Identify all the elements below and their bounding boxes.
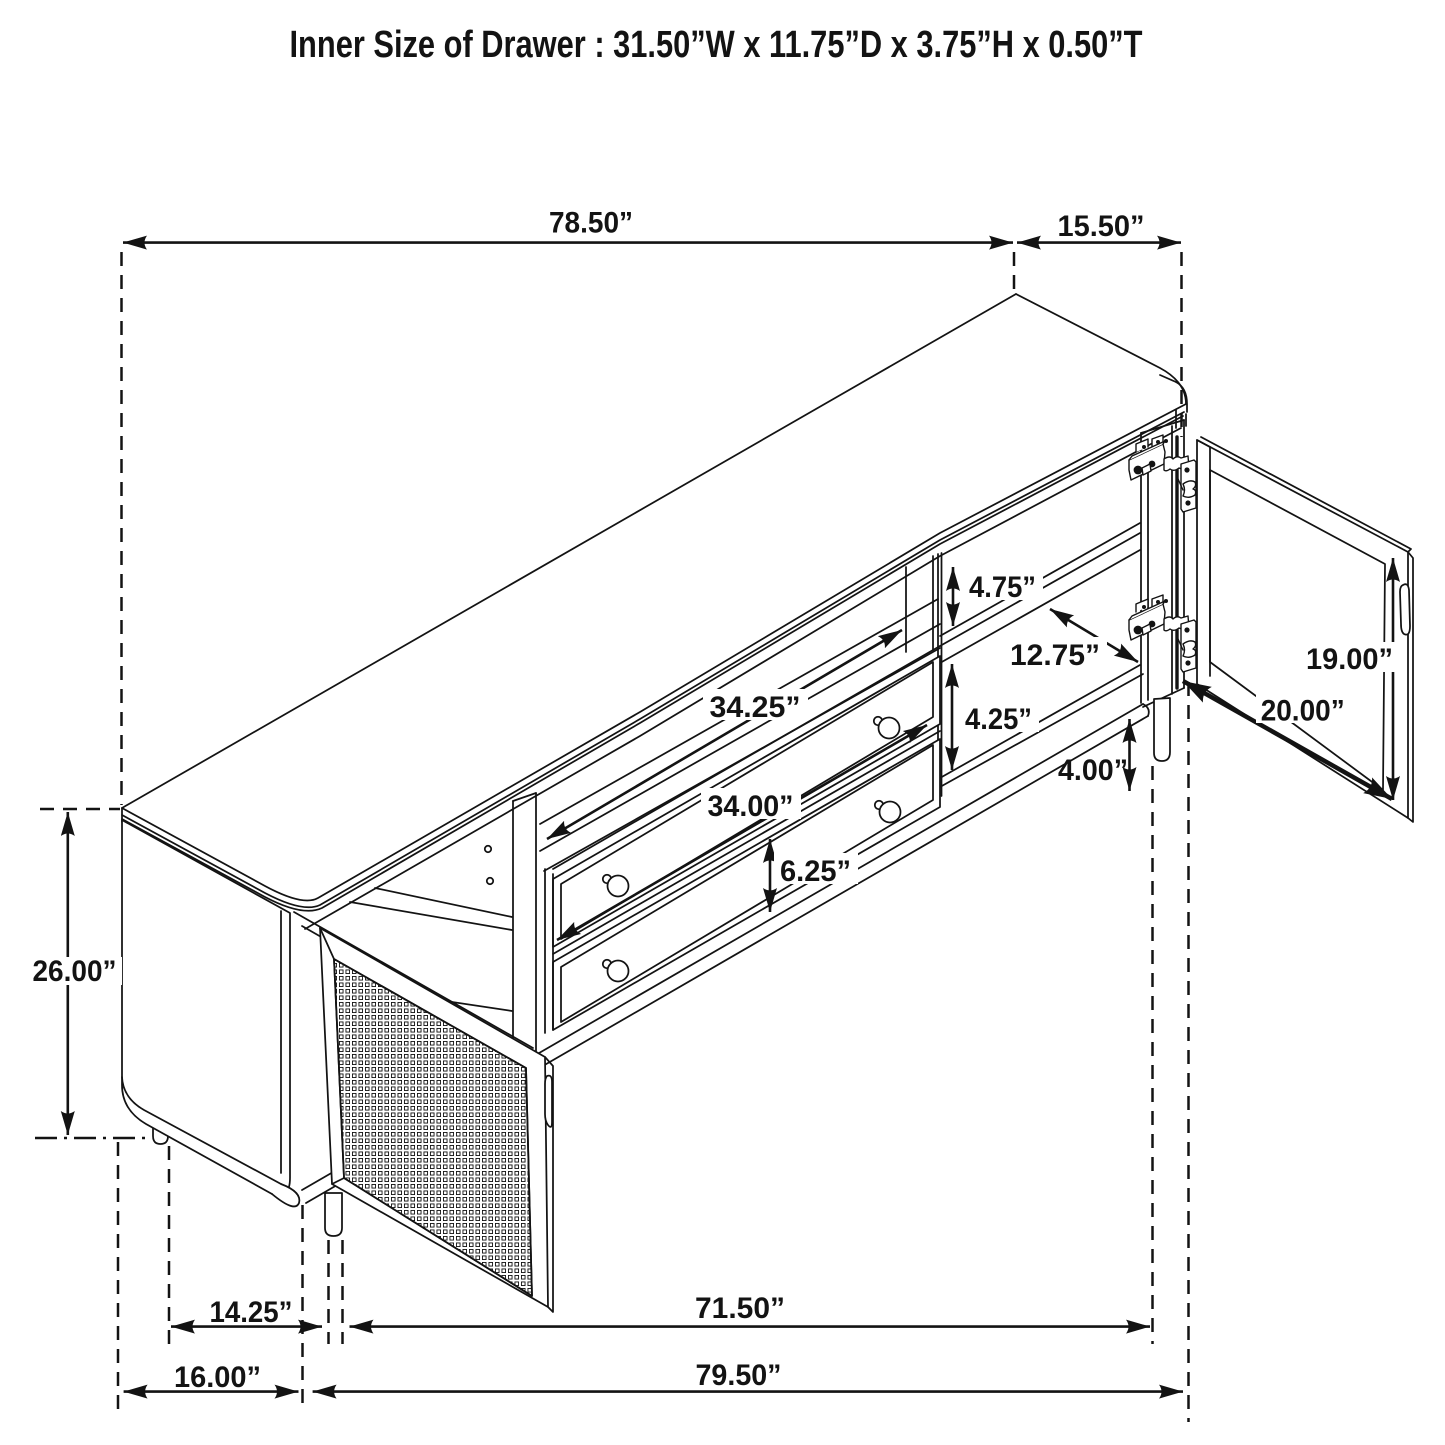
svg-text:4.75”: 4.75” (969, 571, 1036, 604)
svg-text:79.50”: 79.50” (696, 1359, 782, 1392)
svg-text:16.00”: 16.00” (174, 1361, 261, 1394)
svg-text:34.25”: 34.25” (710, 691, 801, 724)
svg-text:26.00”: 26.00” (33, 955, 117, 988)
svg-text:12.75”: 12.75” (1010, 639, 1100, 672)
svg-text:6.25”: 6.25” (780, 855, 851, 888)
svg-text:20.00”: 20.00” (1261, 695, 1345, 728)
svg-text:78.50”: 78.50” (549, 207, 633, 240)
svg-text:19.00”: 19.00” (1306, 643, 1393, 676)
svg-text:14.25”: 14.25” (210, 1296, 293, 1329)
svg-text:Inner Size of Drawer : 31.50”W: Inner Size of Drawer : 31.50”W x 11.75”D… (290, 24, 1143, 66)
svg-text:34.00”: 34.00” (708, 790, 794, 823)
svg-text:4.25”: 4.25” (965, 703, 1032, 736)
svg-text:15.50”: 15.50” (1058, 210, 1145, 243)
svg-text:71.50”: 71.50” (695, 1292, 785, 1325)
svg-text:4.00”: 4.00” (1058, 754, 1128, 787)
